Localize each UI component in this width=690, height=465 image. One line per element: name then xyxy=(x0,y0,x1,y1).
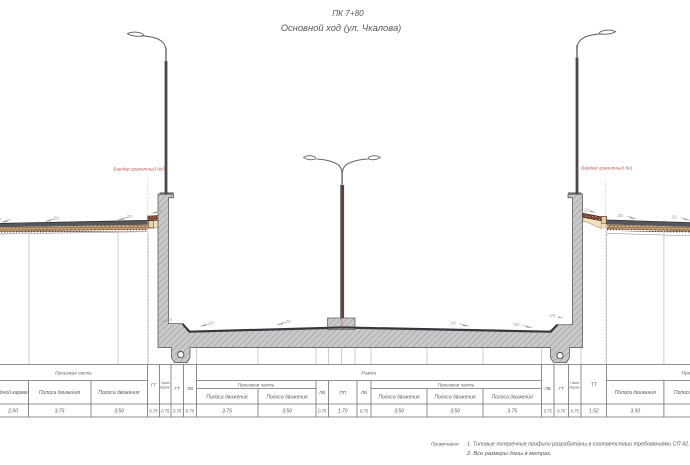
svg-text:0.75: 0.75 xyxy=(557,409,566,414)
svg-text:3.75: 3.75 xyxy=(507,409,517,415)
svg-text:ЛБ: ЛБ xyxy=(360,390,367,395)
svg-text:3.50: 3.50 xyxy=(450,409,460,415)
svg-text:1.52: 1.52 xyxy=(589,409,599,415)
svg-text:3.75: 3.75 xyxy=(222,409,232,415)
svg-text:3.50: 3.50 xyxy=(630,409,640,415)
svg-text:0.75: 0.75 xyxy=(544,409,553,414)
svg-text:Бордюр гранитный №1: Бордюр гранитный №1 xyxy=(581,165,633,171)
svg-text:Проезжая часть: Проезжая часть xyxy=(438,383,475,388)
svg-text:Полоса движения: Полоса движения xyxy=(206,394,247,400)
svg-text:0.75: 0.75 xyxy=(173,409,182,414)
svg-text:20: 20 xyxy=(450,320,457,326)
svg-text:Полоса движения: Полоса движения xyxy=(39,390,80,396)
svg-text:Полоса движения: Полоса движения xyxy=(674,390,690,396)
svg-text:3.50: 3.50 xyxy=(114,409,124,415)
svg-text:Рампа: Рампа xyxy=(362,371,377,376)
svg-text:3.50: 3.50 xyxy=(282,409,292,415)
svg-text:ЛБ: ЛБ xyxy=(318,390,325,395)
svg-text:Проезжая часть: Проезжая часть xyxy=(55,371,92,376)
svg-text:3.50: 3.50 xyxy=(394,409,404,415)
svg-text:0.75: 0.75 xyxy=(186,409,195,414)
svg-text:Полоса движения: Полоса движения xyxy=(266,394,307,400)
svg-text:1. Типовые поперечные профили: 1. Типовые поперечные профили разработан… xyxy=(467,442,690,448)
svg-text:20: 20 xyxy=(208,320,215,326)
svg-text:Бордюр гранитный №5: Бордюр гранитный №5 xyxy=(113,166,165,172)
svg-text:3.75: 3.75 xyxy=(55,409,65,415)
svg-text:1.70: 1.70 xyxy=(338,409,348,415)
svg-text:Проезжая часть: Проезжая часть xyxy=(682,371,690,376)
svg-text:Полоса движения: Полоса движения xyxy=(98,390,139,396)
svg-text:20: 20 xyxy=(166,317,172,322)
svg-text:Газон: Газон xyxy=(161,381,170,385)
svg-text:дорож.: дорож. xyxy=(569,385,580,389)
svg-text:дорож.: дорож. xyxy=(160,385,171,389)
svg-text:Полоса движения: Полоса движения xyxy=(434,394,475,400)
svg-text:0.75: 0.75 xyxy=(149,409,158,414)
svg-text:ПП: ПП xyxy=(339,390,346,395)
svg-text:Проезжая часть: Проезжая часть xyxy=(238,383,275,388)
svg-text:ЛБ: ЛБ xyxy=(186,386,193,391)
svg-text:Основной ход (ул. Чкалова): Основной ход (ул. Чкалова) xyxy=(281,22,402,33)
svg-text:20: 20 xyxy=(513,322,520,328)
svg-text:20: 20 xyxy=(617,213,624,219)
svg-text:20: 20 xyxy=(583,207,589,212)
svg-text:0.75: 0.75 xyxy=(571,409,580,414)
svg-text:20: 20 xyxy=(549,313,555,318)
svg-text:20: 20 xyxy=(53,216,60,222)
svg-text:20: 20 xyxy=(126,214,133,220)
svg-text:2. Все размеры даны в метрах.: 2. Все размеры даны в метрах. xyxy=(466,451,552,457)
svg-text:ПК 7+80: ПК 7+80 xyxy=(332,9,364,18)
svg-text:Полоса движения: Полоса движения xyxy=(615,390,656,396)
svg-text:0.75: 0.75 xyxy=(360,409,369,414)
svg-text:Газон: Газон xyxy=(570,381,579,385)
svg-text:0.75: 0.75 xyxy=(318,409,327,414)
svg-text:20: 20 xyxy=(285,319,292,325)
svg-text:ТТ: ТТ xyxy=(591,383,598,389)
svg-text:Примечания: Примечания xyxy=(431,442,459,448)
svg-text:20: 20 xyxy=(157,208,163,213)
svg-text:Полоса движения: Полоса движения xyxy=(492,394,533,400)
svg-text:2.50: 2.50 xyxy=(7,409,18,415)
svg-text:Заездной карман: Заездной карман xyxy=(0,389,29,396)
svg-text:20: 20 xyxy=(671,214,678,220)
svg-text:0.75: 0.75 xyxy=(161,409,170,414)
svg-text:Полоса движения: Полоса движения xyxy=(378,394,419,400)
svg-text:ЛБ: ЛБ xyxy=(544,386,551,391)
